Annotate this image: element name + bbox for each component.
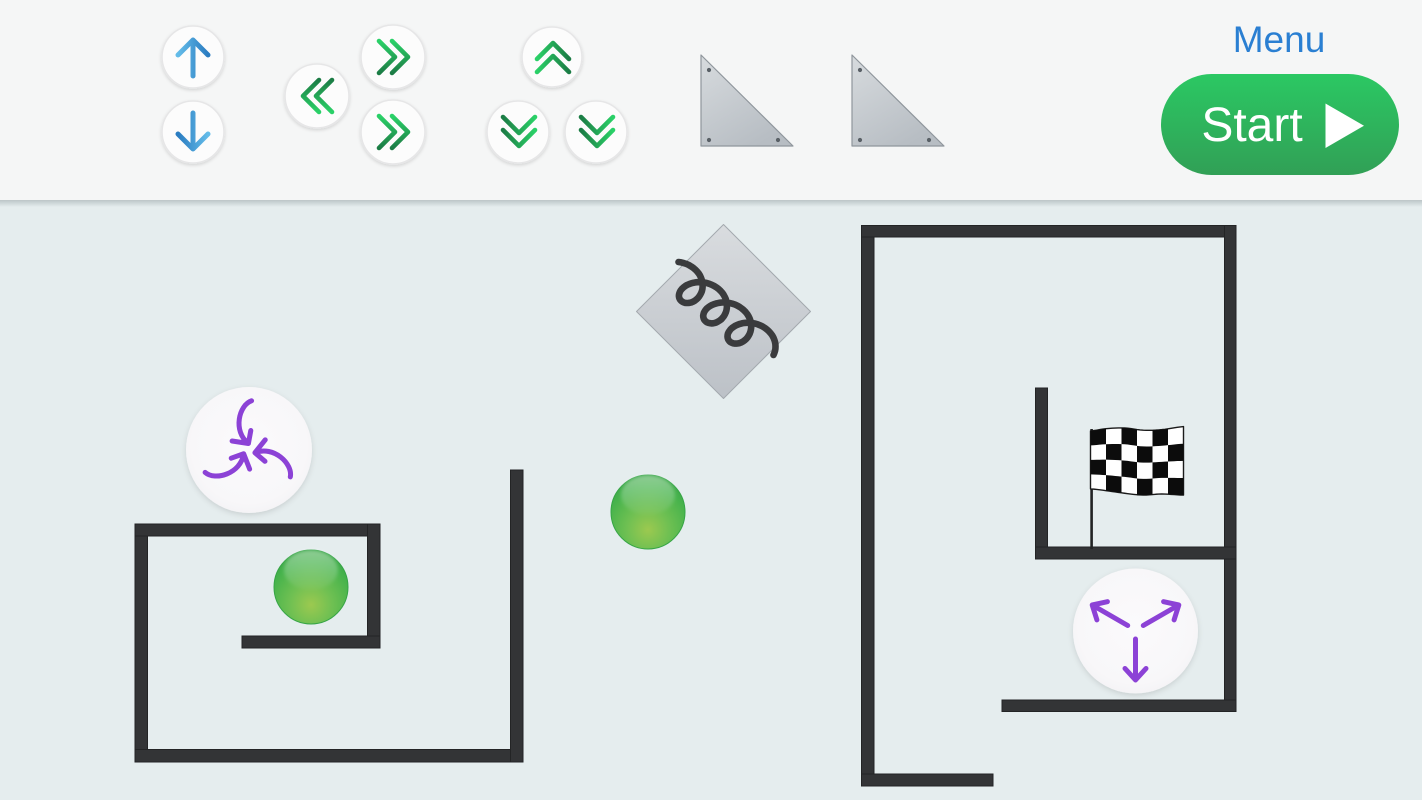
svg-text:Menu: Menu [1233,19,1326,60]
svg-text:Start: Start [1201,99,1302,152]
